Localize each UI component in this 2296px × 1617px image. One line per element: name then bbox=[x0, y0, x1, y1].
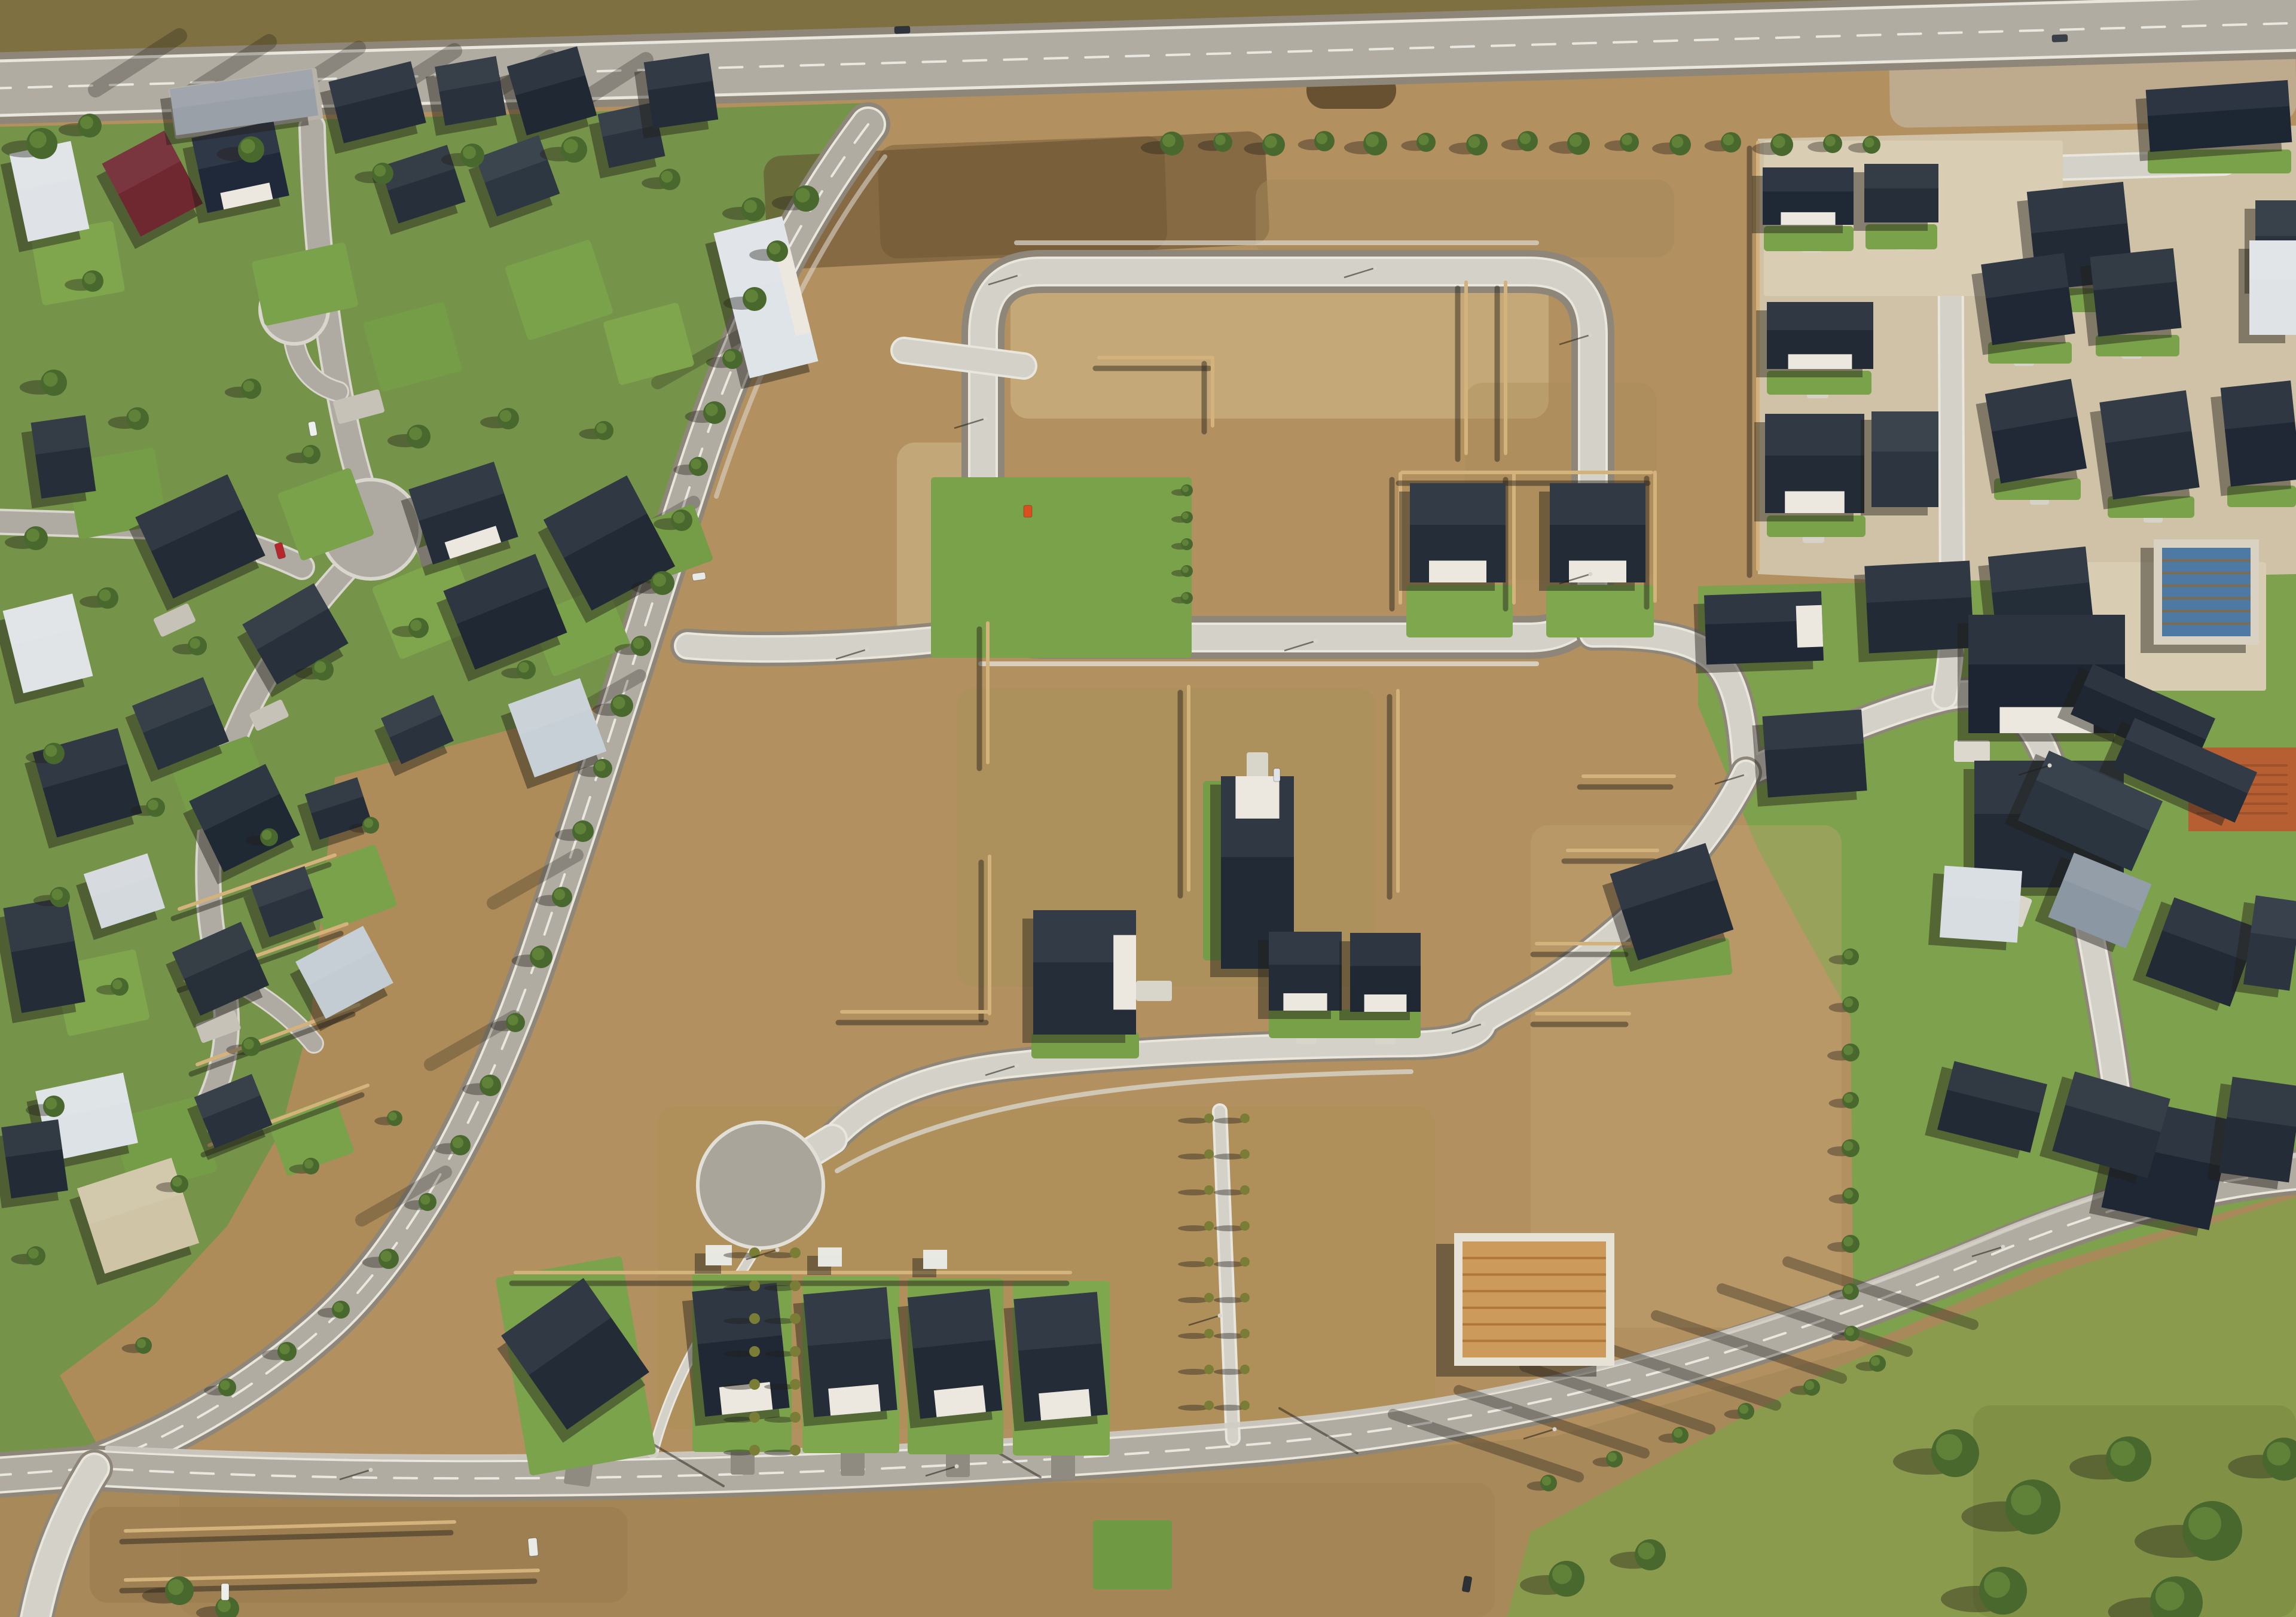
house bbox=[1861, 411, 1938, 515]
shrub bbox=[1204, 1221, 1214, 1231]
tree-canopy-light bbox=[1844, 1189, 1853, 1198]
tree-canopy-light bbox=[2155, 1582, 2184, 1610]
tree-canopy-light bbox=[1739, 1405, 1748, 1414]
lamp-head bbox=[955, 1465, 959, 1469]
tree-canopy-light bbox=[1182, 539, 1189, 546]
tree-canopy-light bbox=[334, 1302, 344, 1313]
lamp-head bbox=[1218, 1314, 1222, 1318]
tree-canopy-light bbox=[563, 139, 578, 153]
tree-canopy-light bbox=[1936, 1434, 1962, 1460]
roof-highlight bbox=[692, 1283, 781, 1344]
shrub bbox=[749, 1412, 760, 1423]
roof-highlight bbox=[706, 1245, 732, 1253]
roof-highlight bbox=[1968, 615, 2125, 664]
tree-canopy-light bbox=[518, 662, 529, 673]
tree-canopy-light bbox=[380, 1250, 392, 1262]
tree-canopy-light bbox=[500, 410, 512, 422]
tree-canopy-light bbox=[1182, 593, 1189, 600]
tree-canopy-light bbox=[1773, 136, 1785, 148]
shrub bbox=[749, 1379, 760, 1390]
tree-canopy-light bbox=[1162, 134, 1176, 147]
tree-canopy-light bbox=[1542, 1476, 1551, 1485]
house bbox=[1003, 1292, 1109, 1431]
tree-canopy-light bbox=[45, 745, 57, 757]
roof-highlight bbox=[1864, 164, 1938, 188]
tree-canopy-light bbox=[303, 447, 314, 457]
house-wall bbox=[1788, 354, 1852, 369]
new-cul-de-sac-bulb-surface bbox=[700, 1124, 822, 1246]
roof-highlight bbox=[1762, 709, 1864, 750]
ground-patch bbox=[179, 1483, 1495, 1617]
roof-highlight bbox=[2255, 200, 2296, 236]
roof-highlight bbox=[1765, 414, 1864, 456]
roof-highlight bbox=[908, 1289, 995, 1348]
tree-canopy-light bbox=[595, 761, 606, 771]
house bbox=[2208, 1075, 2296, 1191]
lamp-head bbox=[1744, 773, 1748, 777]
house bbox=[1970, 253, 2076, 355]
shrub bbox=[1204, 1293, 1214, 1302]
driveway-pad bbox=[1954, 740, 1990, 762]
lamp-head bbox=[775, 1248, 780, 1252]
house bbox=[2135, 80, 2293, 161]
tree-canopy-light bbox=[279, 1344, 290, 1354]
shrub bbox=[1204, 1149, 1214, 1159]
roof-highlight bbox=[1350, 933, 1421, 966]
tree-canopy-light bbox=[744, 200, 757, 213]
vehicle bbox=[221, 1584, 229, 1600]
house bbox=[633, 53, 719, 139]
tree-canopy-light bbox=[1570, 135, 1582, 147]
tree-canopy-light bbox=[218, 1599, 231, 1612]
roof-highlight bbox=[818, 1247, 842, 1255]
house-wall bbox=[1039, 1389, 1091, 1420]
stub-road-surface bbox=[904, 350, 1024, 366]
tree-canopy-light bbox=[706, 404, 718, 416]
tree-canopy-light bbox=[554, 889, 565, 900]
tree-canopy-light bbox=[508, 1015, 518, 1026]
house bbox=[1974, 379, 2088, 493]
tree-canopy-light bbox=[99, 590, 111, 602]
tree-canopy-light bbox=[653, 573, 666, 587]
shrub bbox=[790, 1346, 801, 1357]
vehicle bbox=[2052, 35, 2068, 42]
tree-canopy-light bbox=[43, 372, 57, 386]
roof-highlight bbox=[2249, 240, 2296, 280]
tree-canopy-light bbox=[389, 1112, 397, 1121]
tree-canopy-light bbox=[374, 165, 386, 177]
tree-canopy-light bbox=[137, 1339, 146, 1348]
tree-canopy-light bbox=[1844, 1285, 1853, 1294]
shrub bbox=[1240, 1257, 1250, 1267]
house bbox=[2079, 248, 2182, 346]
tree-canopy-light bbox=[1844, 1094, 1853, 1103]
roof-highlight bbox=[1871, 411, 1938, 451]
tree-canopy-light bbox=[724, 350, 735, 362]
house bbox=[1752, 167, 1854, 233]
tree-canopy-light bbox=[769, 243, 781, 255]
tree-canopy-light bbox=[129, 410, 141, 422]
shrub bbox=[749, 1445, 760, 1456]
tree-canopy-light bbox=[1674, 1429, 1683, 1438]
house bbox=[1854, 560, 1974, 662]
tree-canopy-light bbox=[172, 1177, 182, 1187]
tree-canopy-light bbox=[84, 273, 96, 285]
tree-canopy-light bbox=[304, 1160, 313, 1168]
tree-canopy-light bbox=[1825, 136, 1836, 147]
lamp-head bbox=[984, 417, 988, 421]
lawn bbox=[931, 477, 1192, 658]
shrub bbox=[749, 1313, 760, 1324]
tree-canopy-light bbox=[51, 889, 63, 900]
roof-highlight bbox=[1550, 483, 1645, 525]
house-wall bbox=[828, 1384, 881, 1415]
house-wall bbox=[1796, 605, 1824, 648]
tree-canopy-light bbox=[1265, 136, 1277, 148]
tree-canopy-light bbox=[262, 830, 272, 840]
tree-canopy-light bbox=[45, 1098, 57, 1110]
tree-canopy-light bbox=[1182, 566, 1189, 573]
shrub bbox=[749, 1280, 760, 1291]
vehicle bbox=[894, 26, 910, 34]
lamp-head bbox=[1018, 273, 1022, 277]
lamp-head bbox=[1589, 572, 1593, 576]
tree-canopy-light bbox=[1844, 950, 1853, 959]
driveway-pad bbox=[1136, 981, 1172, 1001]
tree-canopy-light bbox=[220, 1380, 230, 1390]
house-wall bbox=[1429, 560, 1486, 582]
tree-canopy-light bbox=[26, 529, 39, 542]
roof-highlight bbox=[2221, 380, 2295, 429]
tree-canopy-light bbox=[1672, 136, 1684, 148]
tree-canopy-light bbox=[1215, 135, 1226, 145]
house bbox=[1854, 164, 1938, 231]
shrub bbox=[1240, 1401, 1250, 1410]
house-wall bbox=[1113, 935, 1136, 1010]
lamp-head bbox=[2001, 1245, 2005, 1249]
tree-canopy-light bbox=[691, 459, 701, 469]
shrub bbox=[1204, 1113, 1214, 1123]
shrub bbox=[1240, 1113, 1250, 1123]
house bbox=[1022, 910, 1136, 1043]
tree-canopy-light bbox=[2011, 1485, 2041, 1515]
lamp-head bbox=[1553, 1427, 1557, 1432]
lawn bbox=[1406, 585, 1513, 637]
house bbox=[1258, 932, 1342, 1019]
tree-canopy-light bbox=[29, 131, 47, 148]
lawn bbox=[1093, 1520, 1172, 1589]
tree-canopy-light bbox=[2188, 1507, 2221, 1540]
tree-canopy-light bbox=[1366, 134, 1379, 147]
tree-canopy-light bbox=[243, 380, 254, 392]
shrub bbox=[1204, 1365, 1214, 1374]
tree-canopy-light bbox=[364, 819, 373, 828]
tree-canopy-light bbox=[315, 661, 326, 673]
tree-canopy-light bbox=[452, 1137, 463, 1148]
tree-canopy-light bbox=[1843, 1237, 1854, 1247]
ground-patch bbox=[1256, 179, 1674, 257]
tree-canopy-light bbox=[1723, 134, 1734, 145]
lamp-head bbox=[1015, 1064, 1019, 1068]
aerial-photo-canvas bbox=[0, 0, 2296, 1617]
vehicle bbox=[1274, 768, 1280, 782]
lamp-head bbox=[1373, 266, 1378, 270]
house-wall bbox=[1283, 993, 1327, 1011]
lamp-head bbox=[865, 648, 869, 652]
roof-highlight bbox=[1269, 932, 1342, 965]
tree-canopy-light bbox=[1608, 1453, 1617, 1462]
vehicle bbox=[1024, 505, 1032, 517]
tree-canopy-light bbox=[795, 188, 810, 202]
shrub bbox=[1240, 1185, 1250, 1195]
tree-canopy-light bbox=[240, 139, 255, 153]
shrub bbox=[749, 1346, 760, 1357]
tree-canopy-light bbox=[745, 289, 758, 303]
tree-canopy-light bbox=[1622, 135, 1632, 145]
shrub bbox=[1204, 1329, 1214, 1338]
tree-canopy-light bbox=[575, 823, 587, 835]
tree-canopy-light bbox=[1182, 512, 1189, 519]
tree-canopy-light bbox=[1468, 136, 1480, 148]
lamp-head bbox=[1314, 639, 1318, 643]
tree-canopy-light bbox=[80, 116, 93, 129]
tree-canopy-light bbox=[1843, 1141, 1854, 1151]
roof-highlight bbox=[803, 1287, 891, 1346]
shrub bbox=[790, 1379, 801, 1390]
tree-canopy-light bbox=[409, 427, 422, 440]
tree-canopy-light bbox=[1638, 1542, 1655, 1560]
house-wall bbox=[1364, 994, 1407, 1012]
vehicle bbox=[528, 1537, 539, 1556]
tree-canopy-light bbox=[1418, 135, 1429, 145]
shrub bbox=[1204, 1257, 1214, 1267]
house bbox=[2089, 390, 2200, 509]
roof-highlight bbox=[1013, 1292, 1101, 1350]
house bbox=[897, 1289, 1003, 1428]
tree-canopy-light bbox=[2111, 1441, 2136, 1466]
tree-canopy-light bbox=[420, 1195, 430, 1205]
roof-highlight bbox=[1943, 866, 2022, 901]
house bbox=[2239, 240, 2296, 343]
shrub bbox=[1240, 1221, 1250, 1231]
house bbox=[1693, 591, 1824, 673]
shrub bbox=[790, 1247, 801, 1258]
house-wall bbox=[1569, 560, 1626, 582]
tree-canopy-light bbox=[1871, 1357, 1880, 1366]
stub-road bbox=[904, 350, 1024, 366]
tree-canopy-light bbox=[112, 980, 123, 990]
roof-highlight bbox=[923, 1250, 947, 1258]
house bbox=[1928, 865, 2022, 951]
tree-canopy-light bbox=[2267, 1442, 2291, 1466]
roof-highlight bbox=[2251, 895, 2296, 939]
tree-canopy-light bbox=[673, 512, 685, 524]
house bbox=[1399, 483, 1506, 591]
shrub bbox=[1204, 1401, 1214, 1410]
tree-canopy-light bbox=[1844, 998, 1853, 1007]
house bbox=[1752, 709, 1868, 806]
tree-canopy-light bbox=[1519, 133, 1531, 144]
tree-canopy-light bbox=[1552, 1564, 1572, 1584]
tree-canopy-light bbox=[613, 697, 625, 709]
shrub bbox=[1240, 1149, 1250, 1159]
lamp-head bbox=[1481, 1022, 1485, 1026]
house-wall bbox=[934, 1385, 986, 1417]
roof-highlight bbox=[1767, 302, 1873, 330]
shrub bbox=[1240, 1365, 1250, 1374]
roof-highlight bbox=[1763, 167, 1854, 191]
tree-canopy-light bbox=[1846, 1328, 1854, 1336]
lamp-head bbox=[1589, 333, 1593, 337]
tree-canopy-light bbox=[1984, 1572, 2010, 1598]
lamp-head bbox=[369, 1468, 373, 1472]
tree-canopy-light bbox=[482, 1077, 494, 1089]
tree-canopy-light bbox=[243, 1039, 254, 1049]
house-wall bbox=[1781, 212, 1835, 225]
tree-canopy-light bbox=[190, 638, 200, 649]
house bbox=[1756, 302, 1873, 377]
timber-frame-house bbox=[1436, 1233, 1614, 1377]
tree-canopy-light bbox=[661, 171, 673, 183]
house-wall bbox=[1235, 776, 1279, 819]
house bbox=[2210, 380, 2296, 496]
vehicle bbox=[692, 572, 706, 581]
shrub bbox=[790, 1445, 801, 1456]
scaffold-house bbox=[2141, 539, 2259, 653]
tree-canopy-light bbox=[532, 948, 545, 960]
tree-canopy-light bbox=[28, 1248, 39, 1259]
house-wall bbox=[1785, 491, 1845, 513]
lamp-head bbox=[2048, 764, 2052, 768]
shrub bbox=[1240, 1293, 1250, 1302]
shrub bbox=[1240, 1329, 1250, 1338]
tree-canopy-light bbox=[1805, 1381, 1814, 1390]
house bbox=[424, 56, 508, 136]
roof-highlight bbox=[1864, 560, 1971, 602]
tree-canopy-light bbox=[148, 800, 158, 810]
shrub bbox=[1204, 1185, 1214, 1195]
tree-canopy-light bbox=[1843, 1045, 1854, 1055]
tree-canopy-light bbox=[596, 423, 607, 434]
shrub bbox=[790, 1313, 801, 1324]
new-cul-de-sac-bulb bbox=[696, 1121, 825, 1250]
house bbox=[1339, 933, 1421, 1020]
house bbox=[792, 1287, 898, 1426]
tree-canopy-light bbox=[633, 637, 644, 649]
tree-canopy-light bbox=[1182, 486, 1189, 492]
shrub bbox=[790, 1412, 801, 1423]
tree-canopy-light bbox=[1316, 133, 1327, 144]
house bbox=[1754, 414, 1864, 521]
lawn bbox=[1546, 585, 1654, 637]
aerial-photo bbox=[0, 0, 2296, 1617]
tree-canopy-light bbox=[463, 146, 476, 159]
tree-canopy-light bbox=[1864, 138, 1874, 148]
tree-canopy-light bbox=[168, 1579, 184, 1595]
shrub bbox=[790, 1280, 801, 1291]
tree-canopy-light bbox=[410, 620, 422, 631]
roof-highlight bbox=[1410, 483, 1506, 525]
